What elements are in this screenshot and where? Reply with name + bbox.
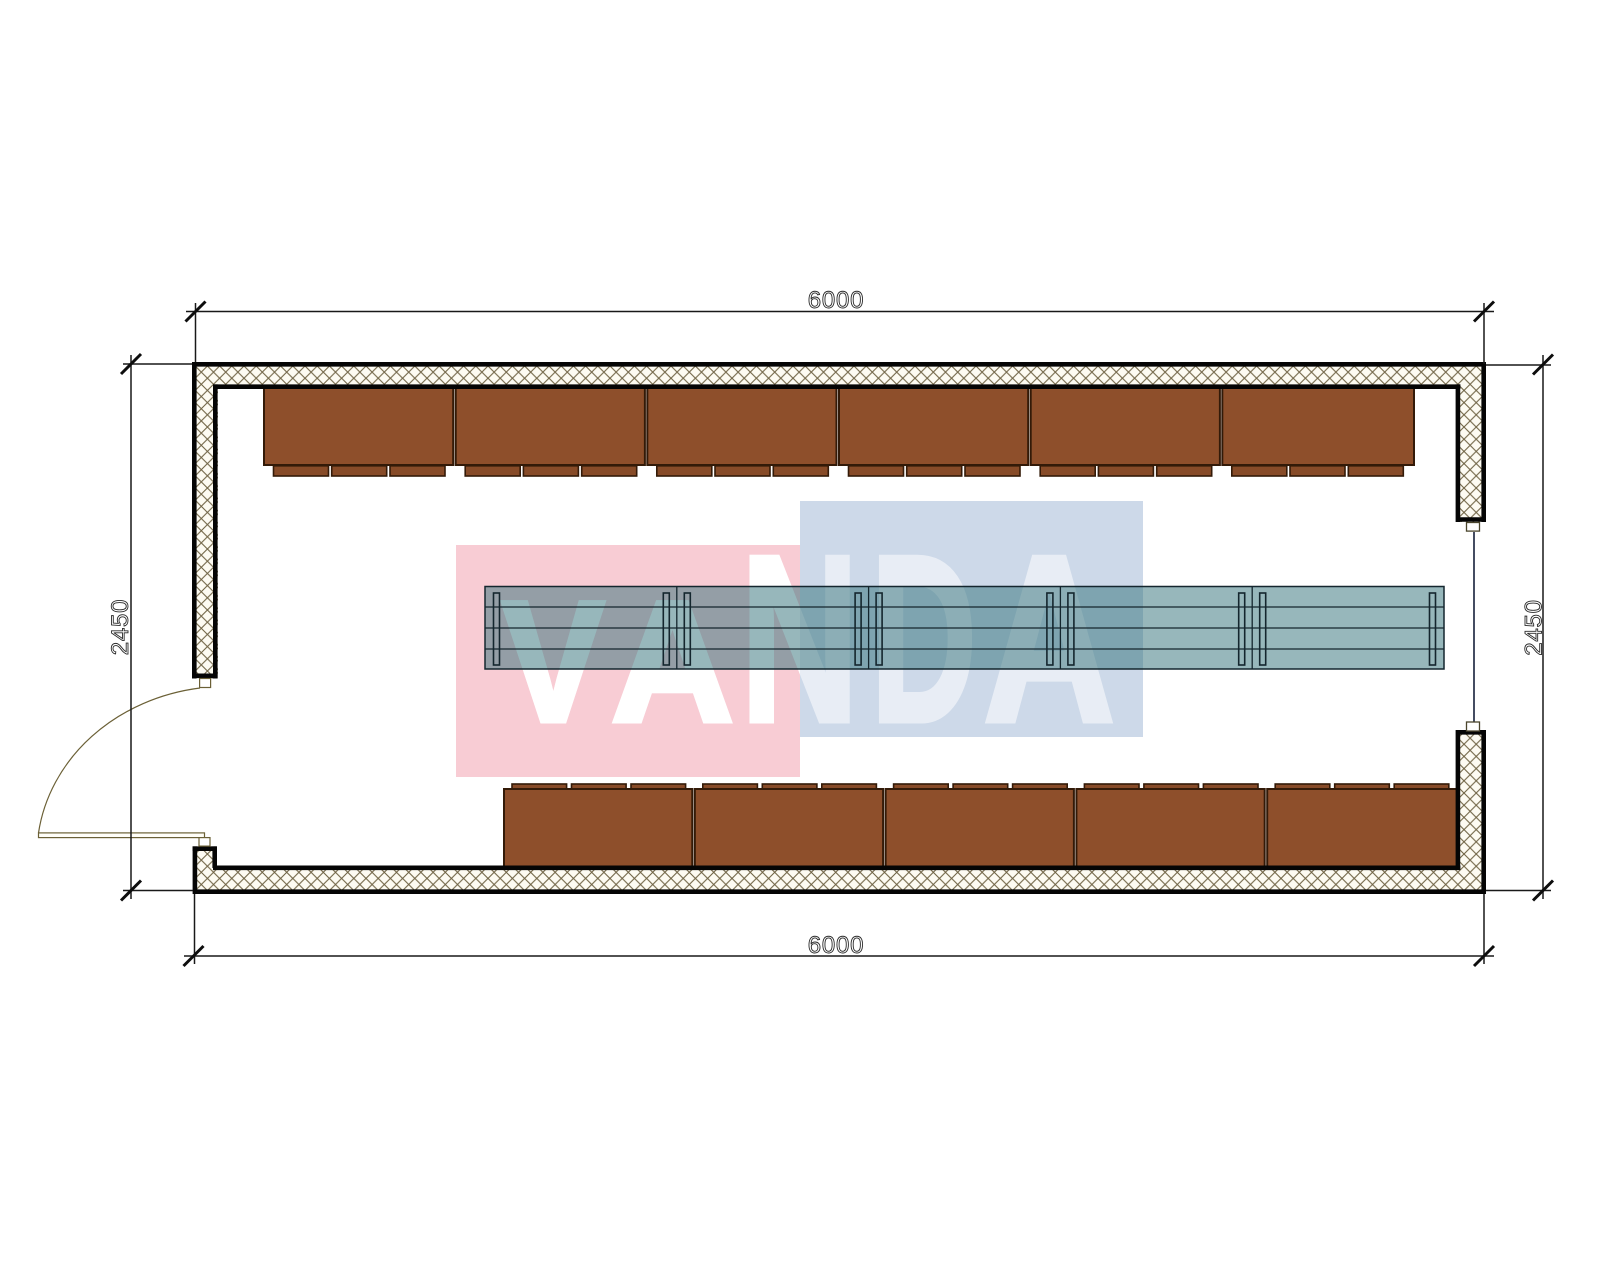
svg-text:6000: 6000 xyxy=(808,287,865,314)
svg-text:2450: 2450 xyxy=(1521,599,1548,656)
svg-text:2450: 2450 xyxy=(107,599,134,656)
svg-text:6000: 6000 xyxy=(808,932,865,959)
